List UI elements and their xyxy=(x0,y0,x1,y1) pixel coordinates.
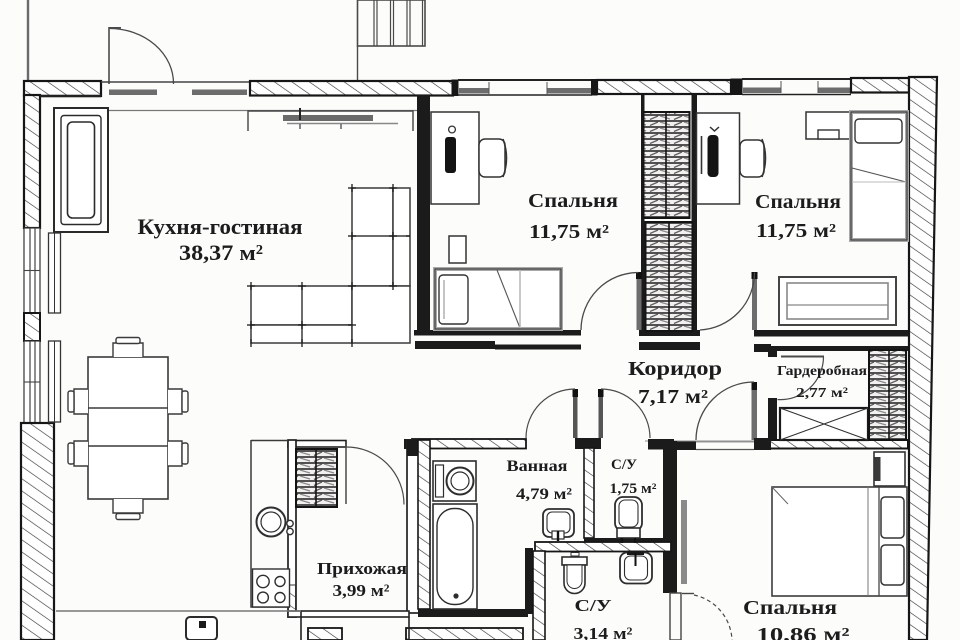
svg-text:4,79 м²: 4,79 м² xyxy=(516,486,572,503)
svg-text:11,75 м²: 11,75 м² xyxy=(529,221,609,243)
svg-text:11,75 м²: 11,75 м² xyxy=(756,220,836,242)
svg-text:Спальня: Спальня xyxy=(755,191,841,213)
svg-text:Гардеробная: Гардеробная xyxy=(777,364,867,379)
svg-text:С/У: С/У xyxy=(611,457,637,473)
svg-text:10,86 м²: 10,86 м² xyxy=(757,624,850,640)
svg-text:38,37 м²: 38,37 м² xyxy=(179,240,263,265)
svg-text:Кухня-гостиная: Кухня-гостиная xyxy=(138,214,303,239)
svg-text:Спальня: Спальня xyxy=(743,597,837,619)
svg-text:Прихожая: Прихожая xyxy=(317,559,407,578)
svg-text:Спальня: Спальня xyxy=(528,190,618,212)
svg-text:Ванная: Ванная xyxy=(507,458,568,475)
svg-text:7,17 м²: 7,17 м² xyxy=(638,386,708,408)
svg-text:С/У: С/У xyxy=(575,596,613,615)
svg-text:Коридор: Коридор xyxy=(628,358,722,380)
svg-text:2,77 м²: 2,77 м² xyxy=(796,386,848,401)
svg-text:3,14 м²: 3,14 м² xyxy=(574,624,633,640)
svg-text:1,75 м²: 1,75 м² xyxy=(610,481,657,497)
svg-text:3,99 м²: 3,99 м² xyxy=(333,581,390,600)
